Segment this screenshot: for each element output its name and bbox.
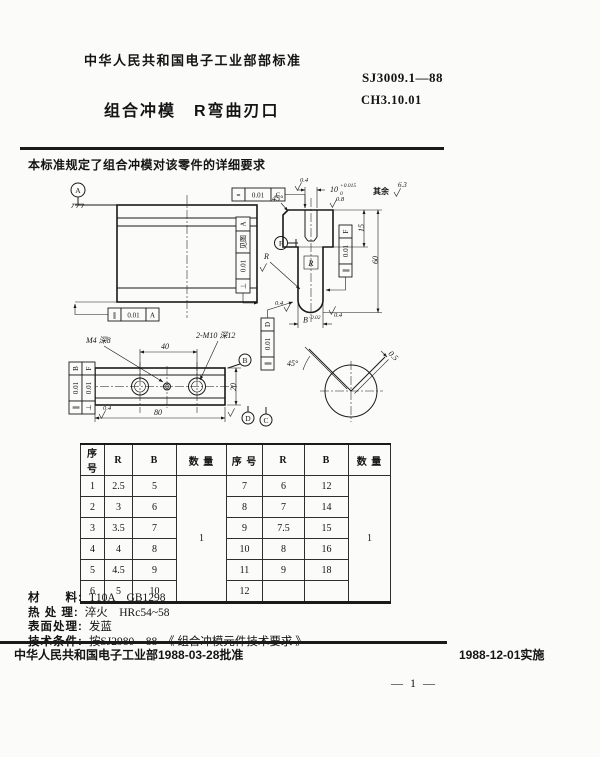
section-view: 45° 10 +0.015 0 0.8 其余 6.3: [260, 181, 407, 370]
cell: 3: [81, 518, 105, 539]
datum-d-label: D: [245, 414, 251, 423]
fcf-symbol: ∥: [72, 406, 80, 410]
rest-value: 6.3: [398, 181, 407, 189]
cell: [305, 581, 349, 603]
implementation-date: 1988-12-01实施: [459, 646, 544, 663]
col-b-left: B: [133, 444, 177, 476]
col-seq-left: 序 号: [81, 444, 105, 476]
fcf-datum: B: [72, 366, 80, 371]
cell: 4: [105, 539, 133, 560]
cell: 7: [133, 518, 177, 539]
cell: 9: [133, 560, 177, 581]
qty-cell-left: 1: [177, 476, 227, 603]
hole-upper-tol: +0.015: [340, 183, 356, 189]
col-r-right: R: [263, 444, 305, 476]
fcf-parallelism-b: B 0.01 ∥: [69, 362, 82, 414]
col-b-right: B: [305, 444, 349, 476]
standard-org: 中华人民共和国电子工业部部标准: [84, 50, 302, 69]
cell: 7.5: [263, 518, 305, 539]
cell: 10: [227, 539, 263, 560]
material-line: 材 料:T10A GB1298: [28, 591, 307, 606]
page-number: — 1 —: [391, 676, 437, 691]
cell: 5: [81, 560, 105, 581]
fcf-perpendicularity-f2: F 0.01 ⊥: [82, 362, 95, 414]
r-box-text: R: [308, 259, 314, 268]
surface-treatment-line: 表面处理:发蓝: [28, 620, 307, 635]
finish-value: 0.4: [300, 177, 309, 184]
cell: 9: [227, 518, 263, 539]
heat-treatment-line: 热 处 理:淬火 HRc54~58: [28, 606, 307, 621]
finish-mark-left: 0.4: [275, 300, 291, 311]
cell: 7: [227, 476, 263, 497]
fcf-note: 见图: [240, 235, 248, 249]
cell: 14: [305, 497, 349, 518]
footer-rule: [0, 641, 447, 644]
cell: 6: [263, 476, 305, 497]
finish-value: 0.4: [334, 312, 343, 319]
surface-value: 发蓝: [89, 621, 112, 633]
fcf-symbol: ∥: [113, 312, 117, 320]
cell: 16: [305, 539, 349, 560]
fcf-tolerance: 0.01: [342, 244, 350, 257]
fcf-tolerance: 0.01: [127, 312, 140, 320]
cell: 5: [133, 476, 177, 497]
cell: 3: [105, 497, 133, 518]
col-qty-right: 数 量: [349, 444, 391, 476]
cell: 3.5: [105, 518, 133, 539]
fcf-tolerance: 0.01: [85, 381, 93, 394]
col-qty-left: 数 量: [177, 444, 227, 476]
r-leader: R: [260, 252, 300, 289]
qty-cell-right: 1: [349, 476, 391, 603]
finish-value: 0.8: [336, 196, 345, 203]
document-page: 中华人民共和国电子工业部部标准 SJ3009.1—88 组合冲模 R弯曲刃口 C…: [0, 0, 600, 757]
parameter-table: 序 号 R B 数 量 序 号 R B 数 量 1 2.5 5 1 7 6 12…: [80, 443, 391, 604]
dim-15-label: 15: [357, 224, 366, 232]
dim-b-tol: -0.02: [309, 315, 321, 321]
finish-value: 0.4: [103, 405, 112, 412]
fcf-symbol: ∥: [264, 362, 272, 366]
detail-angle-label: 45°: [287, 359, 299, 368]
fcf-datum: A: [150, 312, 155, 320]
fcf-datum: F: [85, 366, 93, 370]
datum-c-label: C: [263, 416, 268, 425]
finish-mark-bottom: 0.4: [99, 405, 112, 418]
fcf-symbol: ∥: [342, 269, 350, 273]
fcf-symbol: =: [237, 192, 241, 200]
thread-m10-label: 2-M10 深12: [196, 331, 235, 340]
datum-d: D: [242, 406, 254, 424]
col-r-left: R: [105, 444, 133, 476]
hole-nominal: 10: [330, 185, 338, 194]
finish-check-icon: [260, 263, 267, 271]
finish-mark-top: 0.4: [295, 177, 309, 190]
cell: 11: [227, 560, 263, 581]
heat-value: 淬火 HRc54~58: [85, 607, 170, 619]
dim-20: 20: [227, 368, 241, 405]
cell: 8: [133, 539, 177, 560]
dim-40-label: 40: [161, 342, 169, 351]
finish-check-icon: [228, 408, 235, 416]
page-title: 组合冲模 R弯曲刃口: [104, 97, 280, 121]
fcf-tolerance: 0.01: [252, 192, 265, 200]
dim-80: 80: [95, 407, 225, 422]
bottom-view: M4 深8 40 2-M10 深12 80 20: [69, 331, 272, 426]
fcf-datum: A: [240, 221, 248, 226]
table-row: 1 2.5 5 1 7 6 12 1: [81, 476, 391, 497]
cell: 12: [305, 476, 349, 497]
front-view: A A 见图 0.01 ⊥ ∥ 0.01: [71, 183, 258, 321]
fcf-tolerance: 0.01: [264, 337, 272, 350]
dim-80-label: 80: [154, 408, 162, 417]
cell: 4.5: [105, 560, 133, 581]
classification-code: CH3.10.01: [361, 93, 422, 108]
cell: 1: [81, 476, 105, 497]
r-leader-text: R: [263, 252, 269, 261]
standard-number: SJ3009.1—88: [362, 70, 443, 86]
cell: 2.5: [105, 476, 133, 497]
datum-b: B: [228, 354, 251, 368]
cell: 4: [81, 539, 105, 560]
approval-text: 中华人民共和国电子工业部1988-03-28批准: [14, 646, 243, 663]
fcf-datum: F: [342, 229, 350, 233]
fcf-tolerance: 0.01: [72, 381, 80, 394]
dim-60-label: 60: [371, 256, 380, 264]
cell: 8: [227, 497, 263, 518]
surface-label: 表面处理:: [28, 621, 83, 633]
finish-check-icon: [394, 188, 401, 196]
table-header-row: 序 号 R B 数 量 序 号 R B 数 量: [81, 444, 391, 476]
table-row: 4 4 8 10 8 16: [81, 539, 391, 560]
dim-b-nominal: B: [303, 316, 308, 325]
dim-gap-label: 0.5: [387, 349, 400, 362]
cell: 15: [305, 518, 349, 539]
fcf-tolerance: 0.01: [240, 259, 248, 272]
material-value: T10A GB1298: [89, 592, 166, 604]
fcf-parallelism-a: ∥ 0.01 A: [75, 302, 159, 321]
datum-f-label: F: [279, 239, 283, 248]
fcf-datum: D: [264, 322, 272, 327]
cell: 2: [81, 497, 105, 518]
table-row: 3 3.5 7 9 7.5 15: [81, 518, 391, 539]
hole-dimension: 10 +0.015 0: [297, 183, 356, 208]
cell: 8: [263, 539, 305, 560]
chamfer-angle-label: 45°: [272, 194, 284, 203]
general-finish-note: 其余 6.3: [373, 181, 407, 196]
cell: 7: [263, 497, 305, 518]
table-row: 5 4.5 9 11 9 18: [81, 560, 391, 581]
datum-a-label: A: [75, 186, 81, 195]
rest-label: 其余: [373, 186, 390, 196]
heat-label: 热 处 理:: [28, 607, 79, 619]
cell: 9: [263, 560, 305, 581]
fcf-symbol: ⊥: [85, 404, 93, 410]
finish-mark-hole: 0.8: [330, 196, 345, 207]
edge-detail-view: 45° 0.5: [287, 347, 400, 422]
cell: 6: [133, 497, 177, 518]
technical-drawing: A A 见图 0.01 ⊥ ∥ 0.01: [0, 170, 600, 442]
datum-a: A: [71, 183, 85, 208]
table-row: 2 3 6 8 7 14: [81, 497, 391, 518]
fcf-symbol: ⊥: [240, 283, 248, 289]
header-rule: [20, 147, 444, 150]
datum-b-label: B: [242, 356, 247, 365]
material-label: 材 料:: [28, 592, 83, 604]
dim-20-label: 20: [229, 383, 238, 391]
thread-m4-label: M4 深8: [85, 336, 111, 345]
col-seq-right: 序 号: [227, 444, 263, 476]
datum-c: C: [260, 407, 272, 426]
cell: 18: [305, 560, 349, 581]
